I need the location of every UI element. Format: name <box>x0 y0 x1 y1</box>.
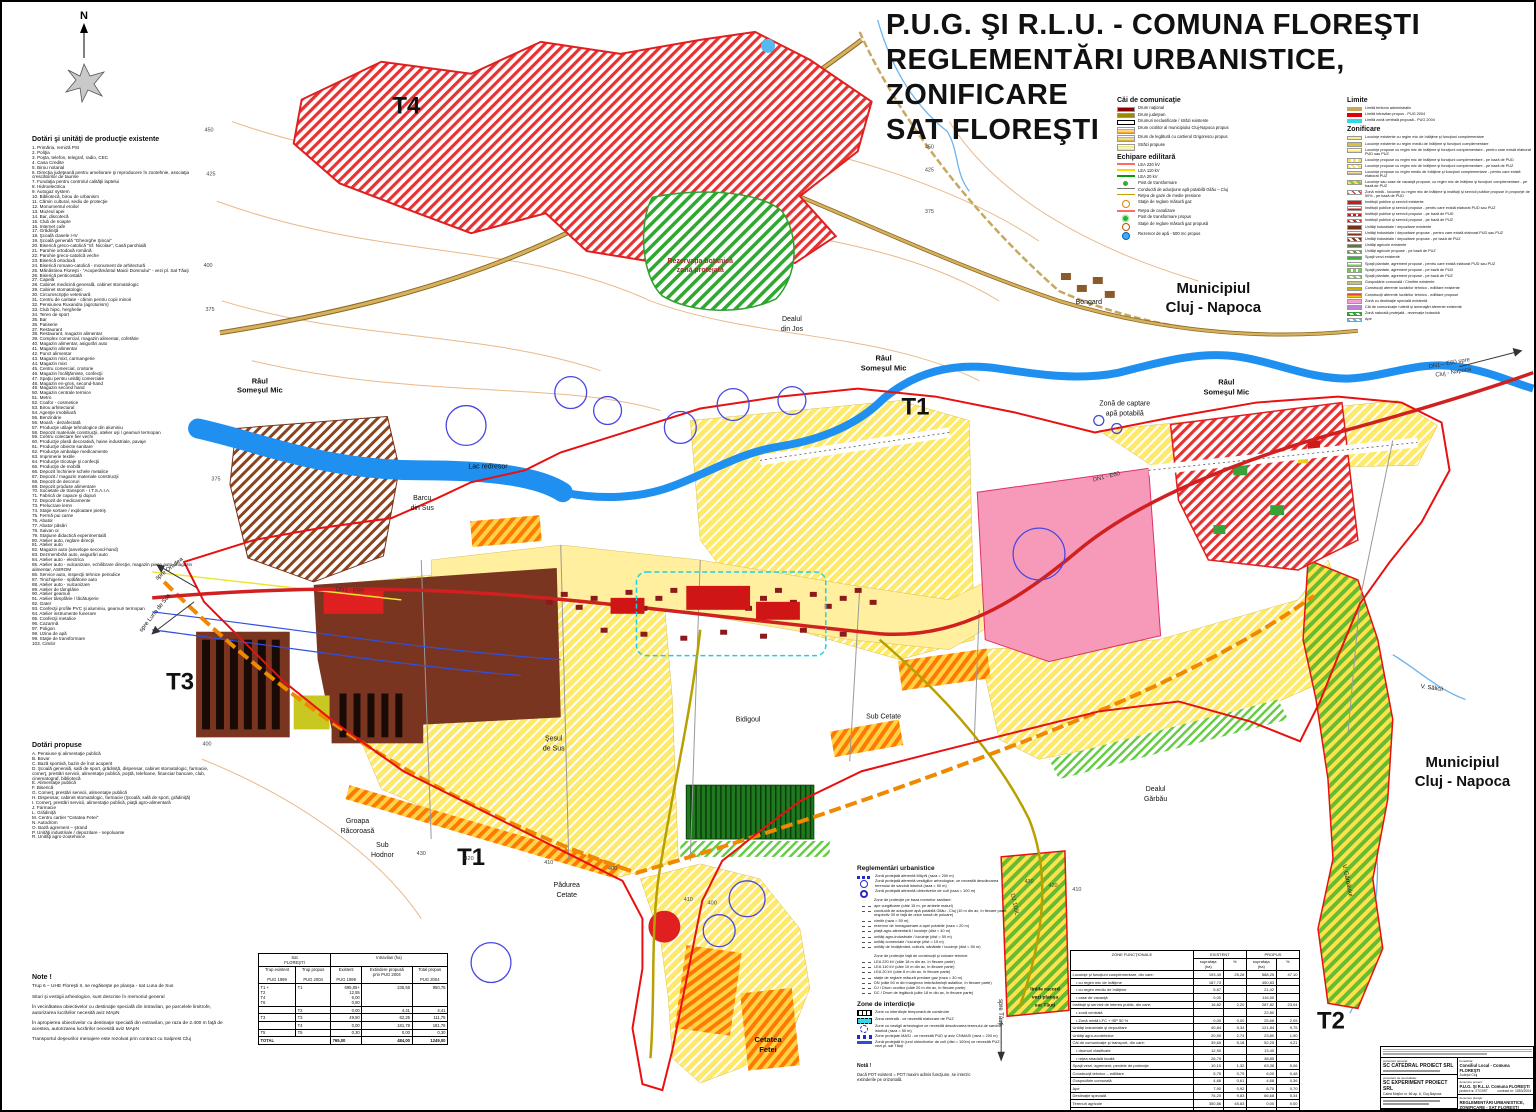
table-cell: 0,30 <box>412 1029 447 1037</box>
dash-swatch <box>862 937 871 938</box>
legend-label: Reţea de gaze de medie presiune <box>1138 194 1339 199</box>
legend-item: Unităţi agricole existente <box>1347 243 1535 248</box>
table-cell: 20,90 <box>1193 1031 1223 1039</box>
disclaimer-line <box>1383 1049 1532 1050</box>
table-cell: • cu regim mic de înălţime <box>1071 978 1194 986</box>
z21-swatch <box>1347 275 1362 280</box>
line-thin-swatch <box>1117 188 1135 189</box>
existing-facilities-heading: Dotări şi unităţi de producţie existente <box>32 136 204 143</box>
nota-heading: Notă ! <box>857 1063 871 1069</box>
list-item: În apropierea obiectivelor cu destinaţie… <box>32 1021 232 1032</box>
line-gas-swatch <box>1117 194 1135 195</box>
legend-item: Spaţii plantate, agrement propuse - pent… <box>1347 262 1535 267</box>
legend-label: Unităţi industriale / depozitare propuse… <box>1365 231 1535 235</box>
list-item: 103. Cimitir <box>32 642 204 647</box>
table-cell: 484,00 <box>362 1037 412 1045</box>
beneficiary-cell: beneficiar: Consiliul Local - Comuna FLO… <box>1458 1058 1534 1079</box>
table-cell <box>1276 993 1299 1001</box>
map-label: Gărbău <box>1144 796 1167 803</box>
map-label: T3 <box>166 669 194 696</box>
map-label: Bidigoul <box>736 716 761 723</box>
table-cell: 0,48 <box>1276 1069 1299 1077</box>
z5-swatch <box>1347 164 1362 169</box>
legend-item: Locuinţe propuse cu regim mediu de înălţ… <box>1347 170 1535 179</box>
legend-label: Zonă protejată aferentă obiectivelor de … <box>875 889 1009 893</box>
map-label: Groapa <box>346 818 369 825</box>
table-cell: 187,73 <box>1193 978 1223 986</box>
interdiction-heading: Zone de interdicţie <box>857 1001 1009 1008</box>
legend-item: Instituţii publice şi servicii propuse -… <box>1347 212 1535 217</box>
legend-label: LEA 110 kV <box>1138 169 1339 174</box>
title-block-cartouche: proiectant general: SC CATEDRAL PROIECT … <box>1380 1046 1534 1110</box>
legend-item: Locuinţe propuse cu regim mic de înălţim… <box>1347 148 1535 157</box>
table-header-cell: Sat FLOREŞTI <box>259 954 331 967</box>
table-cell: • Zonă mixtă LFC + ISP 50 % <box>1071 1016 1194 1024</box>
table-cell <box>1193 1009 1223 1017</box>
map-label: Pădurea <box>554 882 580 889</box>
table-cell: 588,25 <box>1246 971 1276 979</box>
z26-swatch <box>1347 305 1362 310</box>
pond <box>761 39 775 53</box>
general-designer-cell: proiectant general: SC CATEDRAL PROIECT … <box>1381 1058 1457 1075</box>
map-label: din Jos <box>781 326 804 333</box>
map-label: Şesul <box>545 735 563 742</box>
map-label: 400 <box>203 263 212 269</box>
map-label: 375 <box>205 307 214 313</box>
list-item: Trup 6 – UHE Floreşti II, se regăseşte p… <box>32 984 232 990</box>
table-cell: T4 <box>296 1021 331 1029</box>
map-label: de Sus <box>543 745 565 752</box>
z11-swatch <box>1347 213 1362 218</box>
legend-item: Drum ocolitor al municipiului Cluj-Napoc… <box>1117 126 1339 134</box>
map-label: Râul <box>1218 378 1234 387</box>
map-label: Răcoroasă <box>341 828 375 835</box>
table-header-cell: Intravilan (ha) <box>331 954 448 967</box>
legend-item: Zonă protejată aferentă vestigiilor arhe… <box>857 879 1009 888</box>
list-item: D. Şcoală generală, sală de sport, grădi… <box>32 767 212 782</box>
greenhouses-zone <box>686 785 814 839</box>
table-cell: Unităţi industriale şi depozitare <box>1071 1024 1194 1032</box>
legend-label: Construcţii aferente lucrărilor tehnico … <box>1365 293 1535 297</box>
legend-label: Rezervor de apă - 500 mc propus <box>1138 232 1339 237</box>
dash-swatch <box>862 921 871 922</box>
dash-swatch <box>862 978 871 979</box>
table-cell <box>1223 978 1246 986</box>
legend-item: Post de transformare propus <box>1117 215 1339 221</box>
table-cell: 5,75 <box>1193 1069 1223 1077</box>
table-cell: 5,34 <box>1223 1024 1246 1032</box>
legend-roads-utilities: Căi de comunicaţie Drum naţionalDrum jud… <box>1117 94 1339 241</box>
table-cell: 25,28 <box>1223 971 1246 979</box>
table-cell: 0,75 <box>1223 1069 1246 1077</box>
table-cell: 450,83 <box>1246 978 1276 986</box>
bar-olive-swatch <box>1117 113 1135 118</box>
table-cell: TOTAL <box>259 1037 331 1045</box>
map-label: apă potabilă <box>1106 411 1144 418</box>
beneficiary-county: Judeţul Cluj <box>1460 1073 1532 1077</box>
legend-label: Instituţii publice şi servicii propuse -… <box>1365 212 1535 216</box>
table-cell: 5,67 <box>1193 986 1223 994</box>
table-cell: Terenuri agricole <box>1071 1100 1194 1108</box>
legend-item: Căi de comunicaţie rutieră şi amenajări … <box>1347 305 1535 310</box>
map-label: Lac redresor <box>468 463 508 470</box>
table-header-cell: EXISTENT <box>1193 951 1246 959</box>
table-cell: 193,40 <box>1193 971 1223 979</box>
table-cell: 0,00 <box>1276 1100 1299 1108</box>
table-cell <box>1276 1009 1299 1017</box>
table-cell <box>1276 978 1299 986</box>
legend-item: Limită intravilan propus - PUG 2004 <box>1347 112 1535 117</box>
table-cell: Ape <box>1071 1085 1194 1093</box>
legend-label: Unităţi industriale / depozitare existen… <box>1365 225 1535 229</box>
legend-item: Locuinţe propuse cu regim mic de înălţim… <box>1347 158 1535 163</box>
map-label: 410 <box>1072 887 1081 893</box>
signature-bar <box>1383 1100 1440 1102</box>
dash-swatch <box>862 926 871 927</box>
legend-label: Zone cu vestigii arheologice ce necesită… <box>875 1024 1009 1033</box>
table-cell: 2,74 <box>1223 1031 1246 1039</box>
bar-dkred-swatch <box>1117 107 1135 112</box>
regulations-group1: Zonă protejată aferentă MApN (raza = 200… <box>857 874 1009 950</box>
legend-label: Spaţii verzi existente <box>1365 255 1535 259</box>
map-label: liniile racord <box>1030 986 1060 992</box>
map-label: 430 <box>417 851 426 857</box>
map-label: Cluj - Napoca <box>1415 773 1511 790</box>
table-cell: 62,25 <box>362 1014 412 1022</box>
legend-heading-limits: Limite <box>1347 97 1535 104</box>
table-header-cell: % <box>1223 958 1246 971</box>
map-label: Someşul Mic <box>1204 388 1250 397</box>
map-label: Cluj - Napoca <box>1166 299 1262 316</box>
legend-item: Spaţii plantate, agrement propuse - pe b… <box>1347 274 1535 279</box>
int-masi-swatch <box>857 1035 872 1039</box>
table-cell: 0,92 <box>1223 1085 1246 1093</box>
table-cell: 16,82 <box>1193 1001 1223 1009</box>
table-cell: Căi de comunicaţie şi transport, din car… <box>1071 1039 1194 1047</box>
table-cell: Instituţii şi servicii de interes public… <box>1071 1001 1194 1009</box>
table-cell: 8,70 <box>1246 1085 1276 1093</box>
lim-tan-swatch <box>1347 107 1362 112</box>
table-cell: 12,90 <box>1193 1047 1223 1055</box>
sheet-name: REGLEMENTĂRI URBANISTICE, ZONIFICARE - S… <box>1460 1100 1532 1110</box>
table-header-cell: suprafaţa (ha) <box>1193 958 1223 971</box>
legend-label: Spaţii plantate, agrement propuse - pe b… <box>1365 268 1535 272</box>
z25-swatch <box>1347 299 1362 304</box>
legend-label: Locuinţe propuse cu regim mic de înălţim… <box>1365 158 1535 162</box>
legend-heading-zoning: Zonificare <box>1347 126 1535 133</box>
legend-label: DC / Drum de legătură (câte 18 m din ax,… <box>874 991 1009 995</box>
map-label: Dealul <box>1146 786 1166 793</box>
table-header-cell: Existent PUG 1999 <box>331 966 362 984</box>
legend-label: Instituţii publice şi servicii propuse -… <box>1365 218 1535 222</box>
legend-label: Limită intravilan propus - PUG 2004 <box>1365 112 1535 116</box>
table-cell <box>1276 1054 1299 1062</box>
legend-item: Locuinţe sau case de vacanţă propuse, cu… <box>1347 180 1535 189</box>
special-destination-zone <box>977 468 1160 661</box>
z3-swatch <box>1347 148 1362 153</box>
z23-swatch <box>1347 287 1362 292</box>
legend-item: Instituţii publice şi servicii existente <box>1347 200 1535 205</box>
legend-label: Staţie de reglare măsură gaz propusă <box>1138 222 1339 227</box>
map-label: vezi planşa <box>1032 994 1059 1000</box>
table-cell: 0,70 <box>1276 1085 1299 1093</box>
dash-swatch <box>862 947 871 948</box>
map-label: Someşul Mic <box>861 364 907 373</box>
beneficiary-name: Consiliul Local - Comuna FLOREŞTI <box>1460 1063 1532 1073</box>
dash-swatch <box>862 972 871 973</box>
legend-utilities-list: LEA 220 kVLEA 110 kVLEA 20 kVPost de tra… <box>1117 163 1339 240</box>
map-label: Rezervaţia botanică <box>668 258 734 265</box>
table-cell: 5,34 <box>1276 1092 1299 1100</box>
interdiction-list: Zone cu interdicţie temporară de constru… <box>857 1010 1009 1049</box>
legend-item: Unităţi industriale / depozitare existen… <box>1347 225 1535 230</box>
table-cell: • cu regim mediu de înălţime <box>1071 986 1194 994</box>
table-cell: 4,68 <box>1246 1077 1276 1085</box>
table-cell: 121,84 <box>1246 1024 1276 1032</box>
legend-item: Rezervor de apă - 500 mc propus <box>1117 232 1339 241</box>
table-cell: 0,30 <box>331 1029 362 1037</box>
table-cell: 49,50 <box>331 1014 362 1022</box>
arh-swatch <box>860 880 868 888</box>
table-cell: 0,00 <box>1193 1016 1223 1024</box>
specialty-designer-cell: proiectant de specialitate: SC EXPERIMEN… <box>1381 1075 1457 1098</box>
map-label: Râul <box>875 354 891 363</box>
lim-cyan-swatch <box>1347 119 1362 124</box>
list-item: Situri şi vestigii arheologice, sunt des… <box>32 995 232 1001</box>
legend-item: Construcţii aferente lucrărilor tehnico … <box>1347 286 1535 291</box>
z9-swatch <box>1347 200 1362 205</box>
table-cell: T1 + T2 T4 T6 <box>259 984 296 1007</box>
dash-swatch <box>862 983 871 984</box>
dot-green-swatch <box>1123 181 1128 186</box>
band-tan-swatch <box>1117 135 1135 142</box>
table-cell: 1249,00 <box>1246 1107 1276 1112</box>
legend-label: Locuinţe existente cu regim mic de înălţ… <box>1365 135 1535 139</box>
legend-label: LEA 220 kV <box>1138 163 1339 168</box>
sheet-name-cell: denumire planşă: REGLEMENTĂRI URBANISTIC… <box>1458 1095 1534 1112</box>
table-header-cell: Trup propus PUG 2004 <box>296 966 331 984</box>
legend-label: Unităţi agricole existente <box>1365 243 1535 247</box>
table-cell: 4,41 <box>362 1006 412 1014</box>
legend-item: Spaţii verzi existente <box>1347 255 1535 260</box>
nota-block: Notă ! Dacă POT existent = POT maxim adm… <box>857 1054 1009 1082</box>
band-orange-swatch <box>1117 127 1135 134</box>
compass-rose: N <box>50 6 120 106</box>
z4-swatch <box>1347 158 1362 163</box>
table-cell <box>1223 1047 1246 1055</box>
line-yellow-swatch <box>1117 169 1135 171</box>
legend-item: Instituţii publice şi servicii propuse -… <box>1347 206 1535 211</box>
specialty-designer-address: Calea Moţilor nr. 66 ap. 6, Cluj-Napoca <box>1383 1092 1455 1096</box>
legend-item: Staţie de reglare măsură gaz propusă <box>1117 222 1339 231</box>
legend-label: Instituţii publice şi servicii propuse -… <box>1365 206 1535 210</box>
general-designer-name: SC CATEDRAL PROIECT SRL <box>1383 1063 1455 1069</box>
table-cell: • reţea stradală locală <box>1071 1054 1194 1062</box>
project-name-cell: denumire proiect: P.U.G. ŞI R.L.U. Comun… <box>1458 1079 1534 1095</box>
legend-label: Post de transformare <box>1138 181 1339 186</box>
z7-swatch <box>1347 180 1362 185</box>
table-cell: 52,25 <box>1246 1039 1276 1047</box>
z10-swatch <box>1347 206 1362 211</box>
z22-swatch <box>1347 281 1362 286</box>
legend-item: Zonă mixtă - locuinţe cu regim mic de în… <box>1347 190 1535 199</box>
signatures-cell <box>1381 1098 1457 1109</box>
table-cell <box>259 1006 296 1014</box>
legend-label: Ape <box>1365 317 1535 321</box>
circ-gas-swatch <box>1122 200 1130 208</box>
table-cell: 9,75 <box>1276 1024 1299 1032</box>
legend-item: Post de transformare <box>1117 181 1339 187</box>
legend-item: DC / Drum de legătură (câte 18 m din ax,… <box>857 991 1009 995</box>
table-cell: Construcţii tehnico – edilitare <box>1071 1069 1194 1077</box>
map-label: 420 <box>465 856 474 862</box>
z1-swatch <box>1347 136 1362 141</box>
legend-label: Locuinţe existente cu regim mediu de înă… <box>1365 142 1535 146</box>
z13-swatch <box>1347 225 1362 230</box>
table-cell: 111,75 <box>412 1014 447 1022</box>
int-arh-swatch <box>860 1025 868 1033</box>
legend-item: Zonă protejată aferentă obiectivelor de … <box>857 889 1009 898</box>
table-cell <box>1223 1054 1246 1062</box>
table-cell: 0,00 <box>1246 1100 1276 1108</box>
nota-text: Dacă POT existent = POT maxim admis func… <box>857 1072 987 1082</box>
contract-number: contract nr. 1553/2004 <box>1497 1089 1531 1093</box>
table-cell: 4,41 <box>412 1006 447 1014</box>
bar-white-swatch <box>1117 120 1135 125</box>
legend-item: Reţea de gaze de medie presiune <box>1117 194 1339 199</box>
table-cell: Gospodărie comunală <box>1071 1077 1194 1085</box>
table-cell: 40,84 <box>1193 1024 1223 1032</box>
project-number: proiect nr. 27/1997 <box>1460 1089 1488 1093</box>
table-cell: 7,90 <box>1193 1085 1223 1093</box>
proposed-facilities-list: A. Pensiune şi alimentaţie publicăB. Bov… <box>32 752 212 840</box>
map-label: Hodnor <box>371 852 395 859</box>
table-cell: 100,00 <box>1276 1107 1299 1112</box>
int-temp-swatch <box>857 1010 872 1016</box>
table-cell: 0,00 <box>331 1021 362 1029</box>
table-cell: 4,68 <box>1193 1077 1223 1085</box>
table-cell: 63,38 <box>1246 1062 1276 1070</box>
legend-item: Gospodărie comunală / Cimitire existente <box>1347 280 1535 285</box>
z18-swatch <box>1347 256 1362 261</box>
map-label: Municipiul <box>1426 754 1500 771</box>
legend-item: Drum judeţean <box>1117 113 1339 119</box>
circ-water-swatch <box>1122 232 1130 240</box>
table-cell: TOTAL <box>1071 1107 1194 1112</box>
table-cell: 950,78 <box>412 984 447 1007</box>
legend-limits-zoning: Limite Limită teritoriu administrativLim… <box>1347 94 1535 324</box>
legend-item: Locuinţe propuse cu regim mic de înălţim… <box>1347 164 1535 169</box>
legend-label: Zonă protejată în jurul obiectivelor de … <box>875 1040 1009 1049</box>
botanical-reserve-zone <box>644 192 794 310</box>
legend-label: Zone protejate MASI - ce necesită PUD şi… <box>875 1034 1009 1038</box>
circ-gas-p-swatch <box>1122 223 1130 231</box>
legend-label: Spaţii plantate, agrement propuse - pent… <box>1365 262 1535 266</box>
map-label: 450 <box>204 128 213 134</box>
map-label: Râul <box>252 377 268 386</box>
address-bar <box>1383 1070 1440 1072</box>
legend-item: Instituţii publice şi servicii propuse -… <box>1347 218 1535 223</box>
table-cell: Locuinţe şi funcţiuni complementare, din… <box>1071 971 1194 979</box>
list-item: În vecinătatea obiectivelor cu destinaţi… <box>32 1005 232 1016</box>
legend-item: Zonă naturală protejată - rezervaţie bot… <box>1347 311 1535 316</box>
map-label: Barcu <box>413 495 431 502</box>
table-cell: • case de vacanţă <box>1071 993 1194 1001</box>
z15-swatch <box>1347 237 1362 242</box>
existing-facilities-panel: Dotări şi unităţi de producţie existente… <box>32 136 204 646</box>
z24-swatch <box>1347 293 1362 298</box>
regulations-heading: Reglementări urbanistice <box>857 865 1009 872</box>
map-label: 430 <box>1024 879 1033 885</box>
table-cell: 2,20 <box>1223 1001 1246 1009</box>
table-cell: 116,00 <box>1246 993 1276 1001</box>
table-cell: T3 <box>296 1014 331 1022</box>
legend-label: Zonă naturală protejată - rezervaţie bot… <box>1365 311 1535 315</box>
map-label: 400 <box>608 866 617 872</box>
list-item: R. Unităţi agro-zootehnice <box>32 835 212 840</box>
table-cell: 287,82 <box>1246 1001 1276 1009</box>
legend-limits-list: Limită teritoriu administrativLimită int… <box>1347 106 1535 123</box>
disclaimer-block <box>1381 1047 1533 1058</box>
line-red-swatch <box>1117 210 1135 212</box>
legend-item: Unităţi industriale / depozitare propuse… <box>1347 231 1535 236</box>
table-cell: 47,10 <box>1276 971 1299 979</box>
legend-label: Locuinţe propuse cu regim mediu de înălţ… <box>1365 170 1535 179</box>
table-cell: 0,36 <box>1276 1077 1299 1085</box>
line-red-swatch <box>1117 163 1135 165</box>
north-label: N <box>80 10 88 22</box>
table-cell: 765,00 <box>331 1037 362 1045</box>
proposed-facilities-heading: Dotări propuse <box>32 742 212 749</box>
legend-item: Locuinţe existente cu regim mic de înălţ… <box>1347 135 1535 140</box>
map-label: 410 <box>544 860 553 866</box>
table-cell: 0,61 <box>1223 1077 1246 1085</box>
table-cell: 9,83 <box>1223 1092 1246 1100</box>
north-arrow-icon <box>80 23 88 33</box>
map-label: 375 <box>925 209 934 215</box>
legend-label: Zonă protejată aferentă vestigiilor arhe… <box>875 879 1009 888</box>
cult-swatch <box>860 890 868 898</box>
legend-label: Drum ocolitor al municipiului Cluj-Napoc… <box>1138 126 1339 131</box>
legend-label: Unităţi agricole propuse - pe bază de PU… <box>1365 249 1535 253</box>
signature-bar <box>1383 1103 1429 1105</box>
map-label: Sub <box>376 842 389 849</box>
table-cell: T5 <box>259 1029 296 1037</box>
table-cell: 350,86 <box>1193 1100 1223 1108</box>
notes-heading: Note ! <box>32 974 232 981</box>
lim-red-swatch <box>1347 113 1362 118</box>
z20-swatch <box>1347 268 1362 273</box>
table-cell: 2,05 <box>1276 1016 1299 1024</box>
table-cell: 1,90 <box>1276 1031 1299 1039</box>
legend-item: Conductă de aducţiune apă potabilă Gilău… <box>1117 188 1339 193</box>
table-cell: 6,00 <box>1246 1069 1276 1077</box>
table-cell <box>1276 1047 1299 1055</box>
int-cult-swatch <box>857 1041 872 1044</box>
table-cell <box>1223 993 1246 1001</box>
disclaimer-line <box>1383 1051 1532 1052</box>
regulations-panel: Reglementări urbanistice Zonă protejată … <box>857 862 1009 1082</box>
table-cell: • zonă centrală <box>1071 1009 1194 1017</box>
table-header-cell: suprafaţa (ha) <box>1246 958 1276 971</box>
legend-label: Spaţii plantate, agrement propuse - pe b… <box>1365 274 1535 278</box>
legend-item: Ape <box>1347 317 1535 322</box>
z12-swatch <box>1347 219 1362 224</box>
z8-swatch <box>1347 190 1362 195</box>
table-cell: 235,58 <box>362 984 412 1007</box>
legend-item: Construcţii aferente lucrărilor tehnico … <box>1347 293 1535 298</box>
legend-item: Zonă protejată în jurul obiectivelor de … <box>857 1040 1009 1049</box>
